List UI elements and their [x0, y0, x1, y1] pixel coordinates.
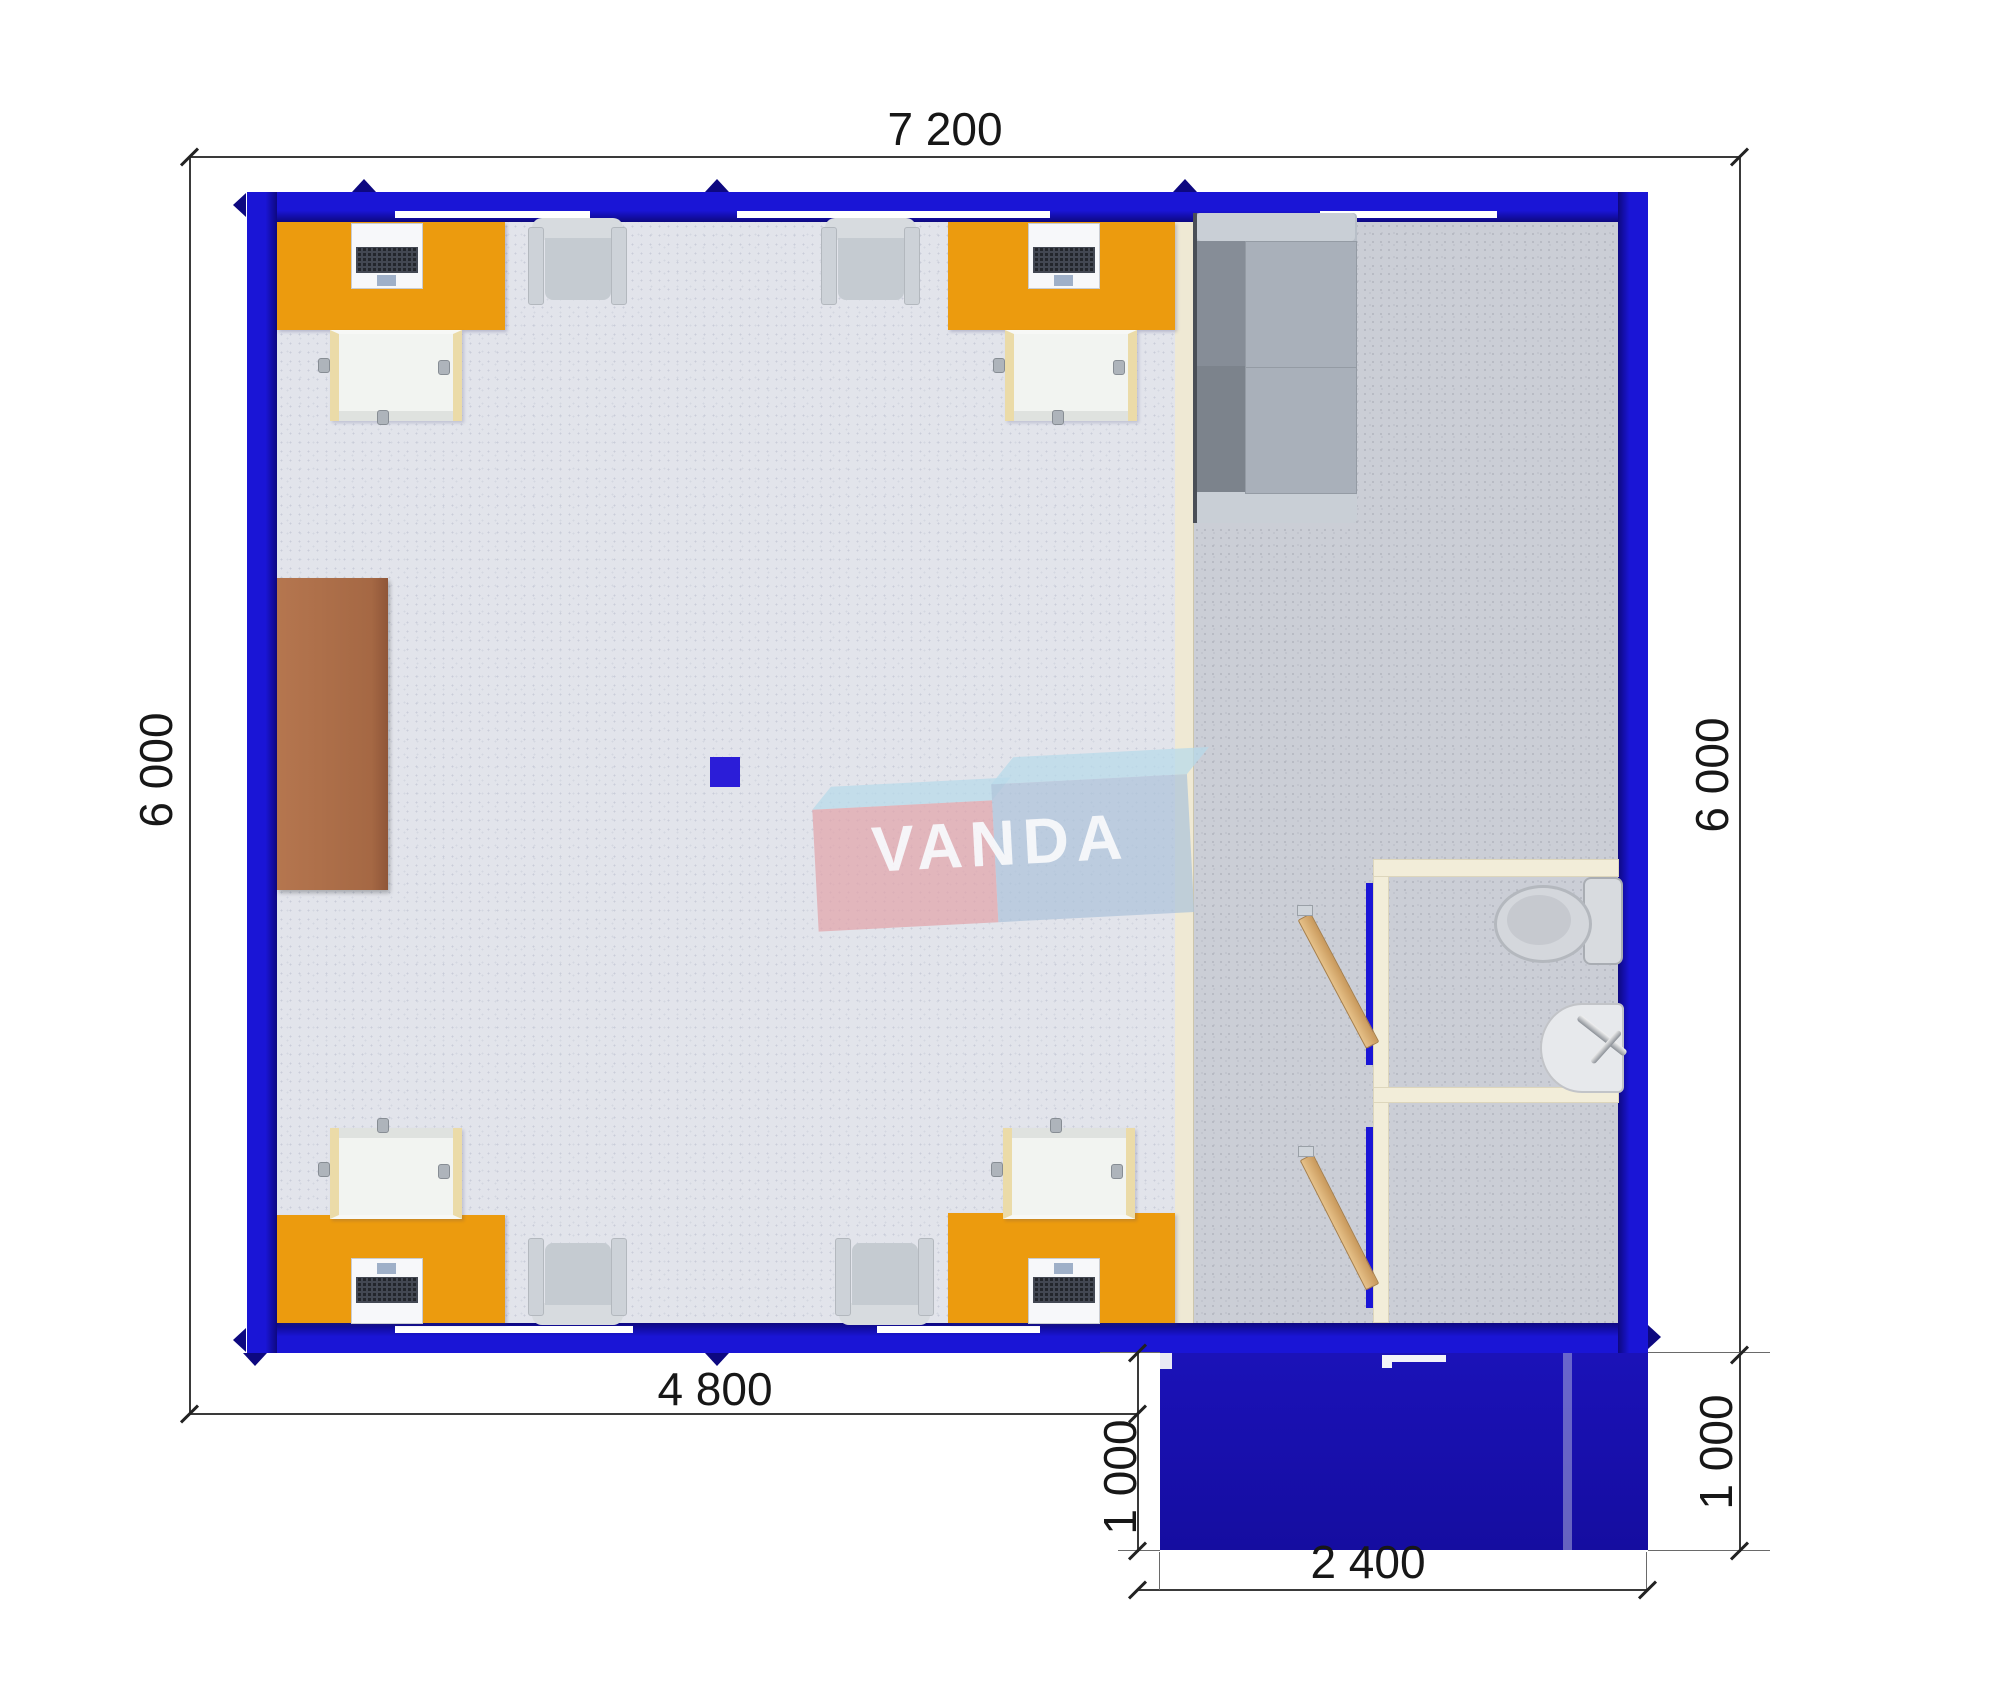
dim-line-porch-width [1137, 1589, 1648, 1591]
sofa-armrest-top [1197, 213, 1355, 241]
toilet-wall-top [1373, 859, 1619, 877]
wall-right [1618, 192, 1648, 1353]
chair-wheel [1111, 1164, 1123, 1179]
armchair-seat [852, 1243, 918, 1305]
dim-label-right: 6 000 [1687, 665, 1737, 885]
column [710, 757, 740, 787]
armchair-back [532, 218, 623, 240]
chair-wheel [1050, 1118, 1062, 1133]
laptop-keyboard [356, 1277, 418, 1303]
armchair-arm [918, 1238, 934, 1316]
toilet-bowl-inner [1507, 895, 1571, 945]
joint-marker-icon [705, 179, 729, 192]
armchair-bottom-right [835, 1230, 934, 1325]
laptop-top-right [1028, 223, 1100, 289]
window-top-1 [395, 211, 590, 218]
laptop-keyboard [1033, 1277, 1095, 1303]
laptop-trackpad [377, 1263, 396, 1274]
dim-label-bottom: 4 800 [565, 1362, 865, 1416]
toilet-bowl [1494, 885, 1592, 963]
chair-wheel [377, 1118, 389, 1133]
armchair-arm [821, 227, 837, 305]
chair-wheel [991, 1162, 1003, 1177]
chair-wheel [438, 1164, 450, 1179]
porch-corner [1160, 1353, 1172, 1369]
dim-label-porch-width: 2 400 [1218, 1535, 1518, 1589]
sofa-back-cushion [1197, 241, 1245, 492]
chair-wheel [993, 358, 1005, 373]
laptop-trackpad [1054, 1263, 1073, 1274]
office-chair-top-left [330, 330, 462, 421]
armchair-seat [545, 1243, 611, 1305]
chair-wheel [318, 358, 330, 373]
porch-edge-strip [1563, 1353, 1572, 1550]
sofa-shadow [1193, 213, 1197, 523]
chair-wheel [318, 1162, 330, 1177]
door-handle [1297, 905, 1313, 916]
cabinet [277, 578, 388, 890]
dim-label-left: 6 000 [131, 660, 181, 880]
laptop-keyboard [356, 247, 418, 273]
porch-threshold-notch [1382, 1355, 1392, 1368]
laptop-trackpad [1054, 275, 1073, 286]
extension-line [1159, 1552, 1160, 1590]
laptop-bottom-right [1028, 1258, 1100, 1324]
sofa-seat-cushion [1245, 367, 1357, 494]
chair-wheel [1113, 360, 1125, 375]
armchair-arm [835, 1238, 851, 1316]
joint-marker-icon [1173, 179, 1197, 192]
laptop-top-left [351, 223, 423, 289]
armchair-back [839, 1303, 930, 1325]
armchair-seat [838, 238, 904, 300]
dim-label-porch-right: 1 000 [1691, 1342, 1741, 1562]
armchair-arm [528, 1238, 544, 1316]
sofa [1195, 213, 1357, 523]
joint-marker-icon [233, 193, 246, 217]
floor-plan: VANDA 7 200 6 000 6 000 4 800 1 000 1 00… [0, 0, 2000, 1682]
joint-marker-icon [352, 179, 376, 192]
entrance-porch [1160, 1353, 1648, 1550]
dim-label-porch-left: 1 000 [1095, 1367, 1145, 1587]
vanda-logo: VANDA [806, 740, 1195, 935]
dim-line-top [190, 156, 1740, 158]
joint-marker-icon [243, 1353, 267, 1366]
extension-line [1646, 1552, 1647, 1590]
armchair-seat [545, 238, 611, 300]
armchair-arm [611, 1238, 627, 1316]
laptop-bottom-left [351, 1258, 423, 1324]
armchair-top-left [528, 218, 627, 313]
laptop-keyboard [1033, 247, 1095, 273]
armchair-back [825, 218, 916, 240]
armchair-arm [528, 227, 544, 305]
door-handle [1298, 1146, 1314, 1157]
chair-wheel [438, 360, 450, 375]
joint-marker-icon [233, 1328, 246, 1352]
armchair-top-right [821, 218, 920, 313]
armchair-arm [904, 227, 920, 305]
dim-label-top: 7 200 [795, 102, 1095, 156]
sofa-seat-cushion [1245, 241, 1357, 368]
window-bottom-2 [877, 1326, 1040, 1333]
office-chair-top-right [1005, 330, 1137, 421]
wall-left [247, 192, 277, 1353]
window-bottom-1 [395, 1326, 633, 1333]
chair-wheel [1052, 410, 1064, 425]
armchair-back [532, 1303, 623, 1325]
joint-marker-icon [1648, 1325, 1661, 1349]
window-top-2 [737, 211, 1050, 218]
chair-wheel [377, 410, 389, 425]
armchair-bottom-left [528, 1230, 627, 1325]
dim-line-left [189, 156, 191, 1415]
extension-line [1100, 1352, 1160, 1353]
laptop-trackpad [377, 275, 396, 286]
armchair-arm [611, 227, 627, 305]
sofa-armrest-bottom [1195, 492, 1357, 523]
